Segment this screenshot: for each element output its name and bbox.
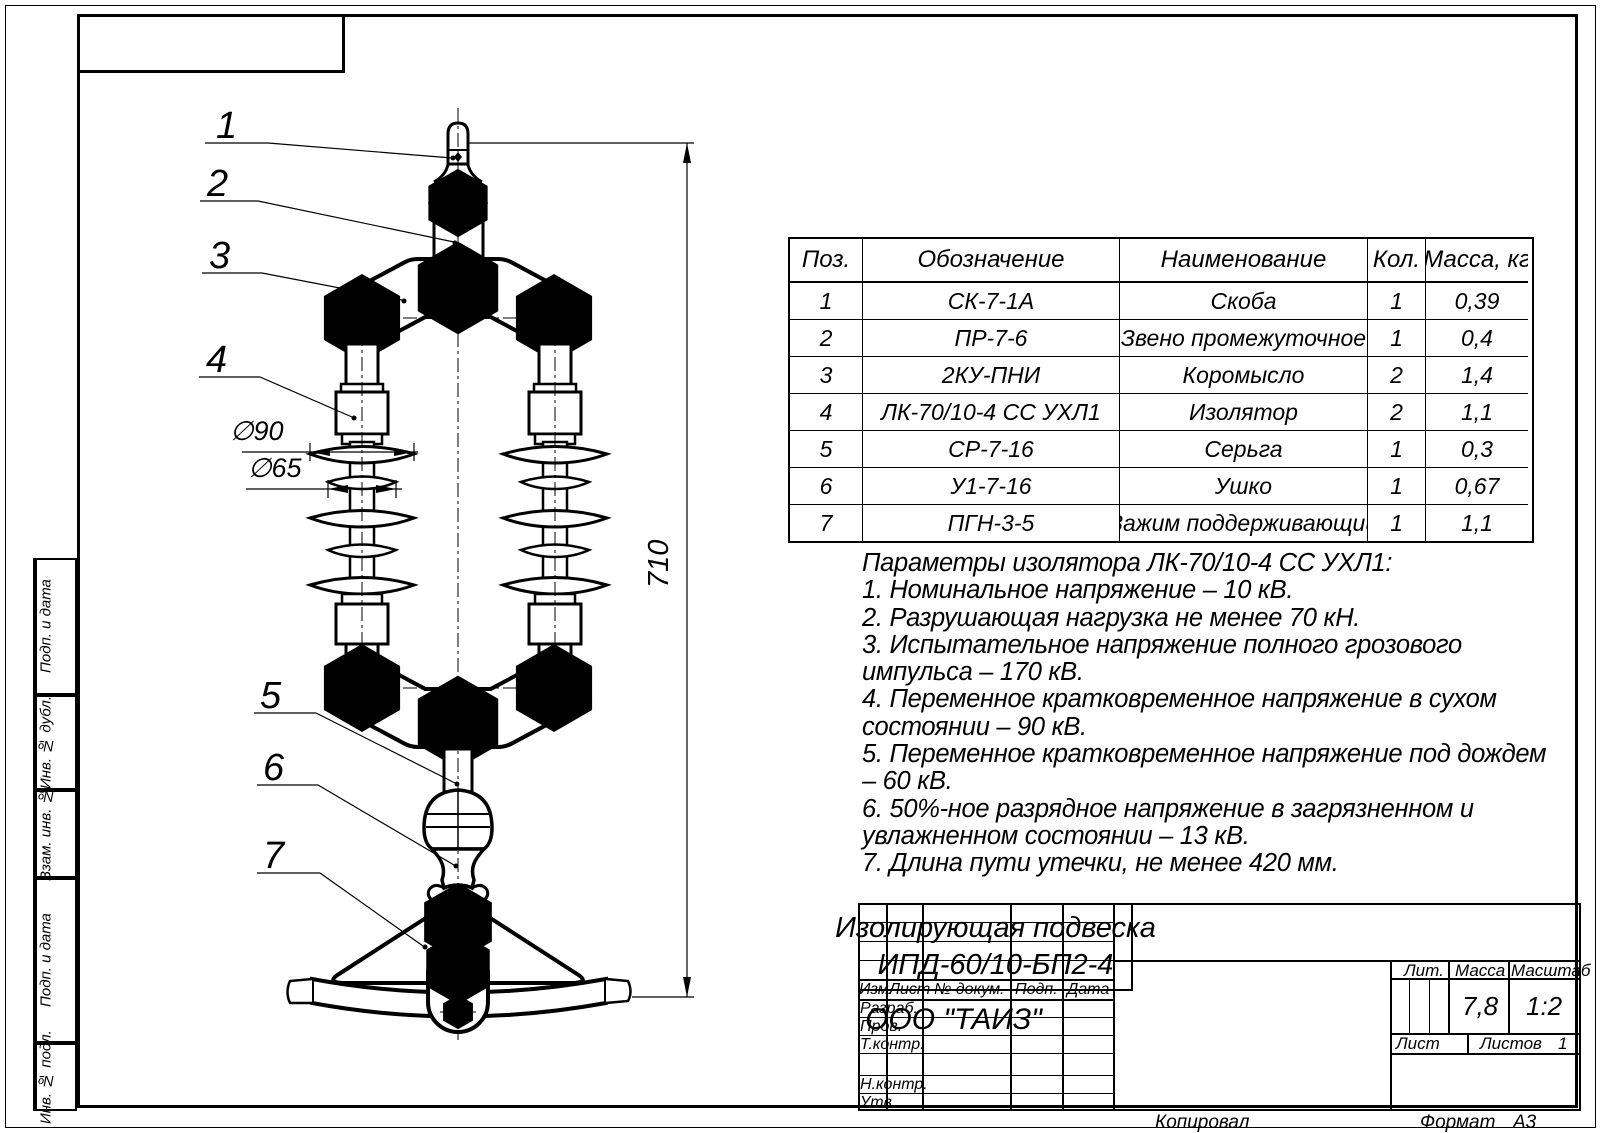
note-line: 1. Номинальное напряжение – 10 кВ.: [862, 577, 1562, 604]
table-cell: 1: [1368, 505, 1426, 541]
table-cell: 1,1: [1426, 505, 1528, 541]
tb-row-label: Разраб.: [860, 1000, 918, 1018]
drawing-sheet: Подп. и дата Инв. № дубл. Взам. инв. № П…: [0, 0, 1600, 1133]
tb-col-header: № докум.: [934, 981, 1004, 999]
dim-d90-label: ∅90: [230, 416, 284, 446]
mass-label: Масса: [1455, 961, 1505, 981]
callouts: 1 2 3 4 5 6 7: [199, 105, 460, 950]
tb-col-header: Дата: [1067, 981, 1109, 999]
note-line: 7. Длина пути утечки, не менее 420 мм.: [862, 850, 1562, 877]
table-cell: 2КУ-ПНИ: [863, 357, 1120, 394]
tb-row-label: Пров.: [860, 1018, 902, 1036]
note-line: – 60 кВ.: [862, 768, 1562, 795]
callout-2: 2: [206, 163, 228, 205]
tb-col-header: Изм.: [859, 981, 893, 999]
table-cell: 1: [1368, 468, 1426, 505]
table-cell: Коромысло: [1120, 357, 1368, 394]
assembly-drawing: ∅90 ∅65 710: [0, 0, 780, 1133]
note-line: 2. Разрушающая нагрузка не менее 70 кН.: [862, 605, 1562, 632]
scale-label: Масштаб: [1511, 961, 1590, 981]
note-line: импульса – 170 кВ.: [862, 659, 1562, 686]
insulator-parameters-notes: Параметры изолятора ЛК-70/10-4 СС УХЛ1: …: [862, 550, 1562, 878]
callout-5: 5: [260, 675, 282, 717]
sheet-label: Лист: [1396, 1034, 1440, 1054]
note-line: Параметры изолятора ЛК-70/10-4 СС УХЛ1:: [862, 550, 1562, 577]
col-header: Наименование: [1120, 239, 1368, 283]
format-value: А3: [1513, 1112, 1536, 1133]
title-block: Изм. Лист № докум. Подп. Дата Разраб. Пр…: [858, 903, 1581, 1111]
table-cell: 0,4: [1426, 320, 1528, 357]
table-cell: 1: [1368, 431, 1426, 468]
table-cell: 2: [1368, 394, 1426, 431]
table-cell: 1: [1368, 283, 1426, 320]
table-cell: 2: [1368, 357, 1426, 394]
parts-table: Поз. Обозначение Наименование Кол. Масса…: [788, 237, 1534, 543]
table-cell: СР-7-16: [863, 431, 1120, 468]
tb-col-header: Лист: [889, 981, 930, 999]
callout-1: 1: [216, 105, 237, 147]
tb-row-label: Утв.: [860, 1094, 896, 1112]
table-cell: ПГН-3-5: [863, 505, 1120, 541]
sheets-value: 1: [1558, 1034, 1567, 1054]
table-cell: У1-7-16: [863, 468, 1120, 505]
note-line: 6. 50%-ное разрядное напряжение в загряз…: [862, 796, 1562, 823]
table-cell: Ушко: [1120, 468, 1368, 505]
format-label: Формат: [1420, 1112, 1495, 1133]
table-cell: Серьга: [1120, 431, 1368, 468]
table-cell: 6: [790, 468, 863, 505]
callout-7: 7: [263, 835, 286, 877]
table-cell: СК-7-1А: [863, 283, 1120, 320]
table-cell: Зажим поддерживающий: [1120, 505, 1368, 541]
callout-3: 3: [209, 235, 230, 277]
col-header: Кол.: [1368, 239, 1426, 283]
table-cell: 0,67: [1426, 468, 1528, 505]
note-line: 3. Испытательное напряжение полного гроз…: [862, 632, 1562, 659]
note-line: 4. Переменное кратковременное напряжение…: [862, 686, 1562, 713]
table-cell: Скоба: [1120, 283, 1368, 320]
lit-label: Лит.: [1404, 961, 1444, 981]
dim-710-label: 710: [643, 540, 675, 588]
table-cell: 2: [790, 320, 863, 357]
table-cell: 1,4: [1426, 357, 1528, 394]
copied-by-label: Копировал: [1155, 1112, 1250, 1133]
col-header: Обозначение: [863, 239, 1120, 283]
col-header: Поз.: [790, 239, 863, 283]
table-cell: 5: [790, 431, 863, 468]
table-cell: 4: [790, 394, 863, 431]
table-cell: 0,39: [1426, 283, 1528, 320]
col-header: Масса, кг: [1426, 239, 1528, 283]
sheets-label: Листов: [1480, 1034, 1542, 1054]
callout-4: 4: [206, 339, 227, 381]
table-cell: Звено промежуточное: [1120, 320, 1368, 357]
dim-d65-label: ∅65: [248, 453, 303, 483]
note-line: 5. Переменное кратковременное напряжение…: [862, 741, 1562, 768]
table-cell: 7: [790, 505, 863, 541]
callout-6: 6: [263, 747, 285, 789]
tb-row-label: Н.контр.: [860, 1076, 928, 1094]
table-cell: 1: [1368, 320, 1426, 357]
note-line: увлажненном состоянии – 13 кВ.: [862, 823, 1562, 850]
table-cell: 1: [790, 283, 863, 320]
note-line: состоянии – 90 кВ.: [862, 714, 1562, 741]
tb-col-header: Подп.: [1015, 981, 1058, 999]
tb-row-label: Т.контр.: [860, 1036, 925, 1054]
table-cell: 0,3: [1426, 431, 1528, 468]
table-cell: 3: [790, 357, 863, 394]
scale-value: 1:2: [1526, 991, 1562, 1022]
table-cell: Изолятор: [1120, 394, 1368, 431]
mass-value: 7,8: [1462, 991, 1498, 1022]
table-cell: ПР-7-6: [863, 320, 1120, 357]
table-cell: 1,1: [1426, 394, 1528, 431]
table-cell: ЛК-70/10-4 СС УХЛ1: [863, 394, 1120, 431]
